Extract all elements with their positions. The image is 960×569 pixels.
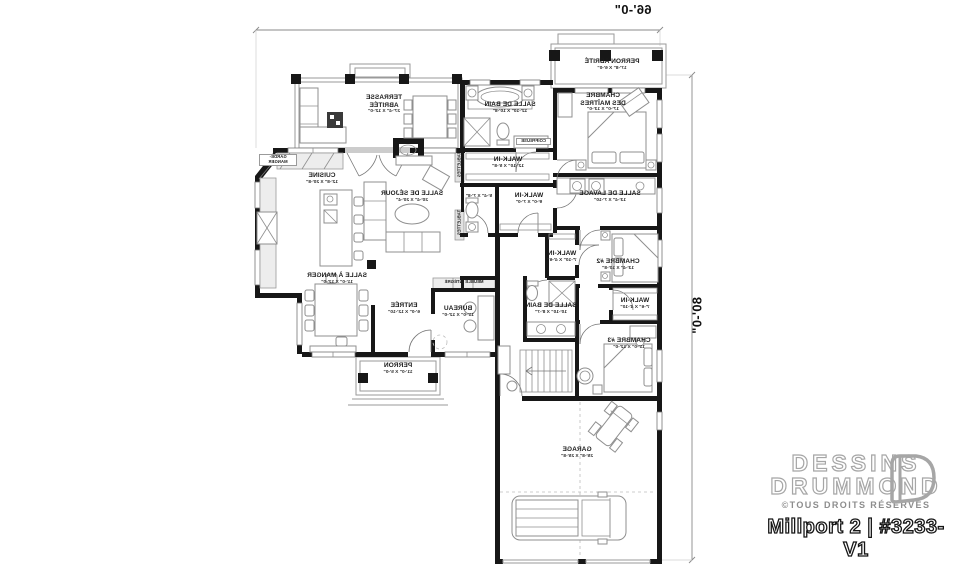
atv xyxy=(588,400,639,452)
room-label-sejour: SALLE DE SÉJOUR 20'-4" X 20'-4" xyxy=(374,190,450,203)
room-label-salle-de-bain-maitres: SALLE DE BAIN 12'-10" X 10'-8" xyxy=(478,101,542,114)
room-label-terrasse: TERRASSE ABRITÉE 27'-4" X 12'-0" xyxy=(352,94,416,115)
label-tablettes-1: TABLETTES xyxy=(458,149,463,179)
room-label-chambre-maitres: CHAMBRE DES MAÎTRES 17'-0" X 13'-0" xyxy=(580,92,626,113)
porch-column xyxy=(549,50,560,61)
room-label-walkin2: WALK-IN 9'-0" X 7'-0" xyxy=(501,192,557,205)
terrasse-column xyxy=(291,74,301,84)
label-tablettes-2: TABLETTES xyxy=(458,207,463,237)
room-label-walkin-ch2: WALK-IN 7'-10" X 4'-6" xyxy=(534,250,590,263)
plan-title: Millport 2 | #3233-V1 xyxy=(756,516,956,562)
bbq-grill xyxy=(327,112,343,128)
room-label-garde-manger: GARDE-MANGER xyxy=(259,154,297,166)
room-label-walkin-ch3: WALK-IN 7'-6" X 4'-10" xyxy=(607,297,663,310)
room-label-lavage: SALLE DE LAVAGE 13'-4" X 7'-10" xyxy=(572,190,648,203)
toilet xyxy=(497,123,509,139)
room-label-salle-de-bain2: SALLE DE BAIN 10'-10" X 8'-7" xyxy=(521,302,581,315)
room-label-perron: PERRON 11'-0" X 5'-0" xyxy=(370,362,426,375)
room-label-chambre2: CHAMBRE #2 13'-4" X 10'-8" xyxy=(586,258,650,271)
room-label-walkin-maitres: WALK-IN 12'-10" X 5'-8" xyxy=(480,156,536,169)
bedroom2-furniture xyxy=(601,231,658,282)
dimension-depth-label: 80'-0" xyxy=(690,291,705,341)
label-meuble-integre: MEUBLE INTÉGRÉ xyxy=(432,280,496,285)
terrasse-column xyxy=(345,74,355,84)
room-label-salle-a-manger: SALLE À MANGER 11'-0" X 12'-0" xyxy=(300,272,374,285)
room-label-entree: ENTRÉE 6'-0" X 12'-10" xyxy=(376,302,432,315)
porch-column xyxy=(358,373,368,383)
terrasse-column xyxy=(399,74,409,84)
room-label-bureau: BUREAU 11'-0" X 12'-0" xyxy=(430,305,486,318)
garage-contents xyxy=(500,400,655,556)
floorplan-page: 66'-0" 80'-0" TERRASSE ABRITÉE 27'-4" X … xyxy=(0,0,960,569)
label-coiffeuse: COIFFEUSE xyxy=(516,138,551,145)
porch-column xyxy=(428,373,438,383)
dining-furniture xyxy=(305,274,368,352)
office-furniture xyxy=(433,296,494,349)
room-label-chambre3: CHAMBRE #3 11'-0" X 12'-0" xyxy=(597,337,661,350)
stairs xyxy=(498,346,572,392)
living-room-furniture xyxy=(364,156,450,252)
room-label-cuisine: CUISINE 12'-8" X 20'-8" xyxy=(294,172,350,185)
label-wc-dimensions: 5'-4" X 7'-8" xyxy=(460,194,498,200)
pickup-truck xyxy=(512,492,626,544)
drummond-logo-mark xyxy=(884,450,940,508)
room-label-perron-abrite: PERRON ABRITÉ 17'-8" X 6'-0" xyxy=(570,58,654,71)
structural-post xyxy=(367,260,376,269)
room-label-garage: GARAGE 25'-8" X 25'-8" xyxy=(545,446,609,459)
dimension-width-label: 66'-0" xyxy=(604,2,662,17)
